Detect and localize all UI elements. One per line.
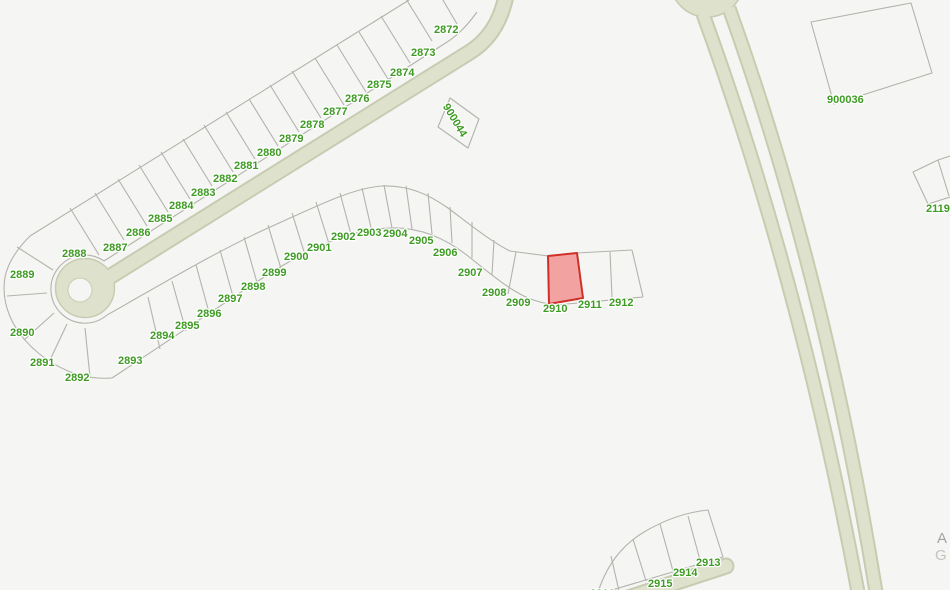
parcel-label-2881: 2881	[234, 160, 258, 172]
parcel-label-2893: 2893	[118, 355, 142, 367]
parcel-label-2878: 2878	[300, 119, 324, 131]
parcel-label-2911: 2911	[578, 299, 602, 311]
parcel-label-2907: 2907	[458, 267, 482, 279]
parcel-label-2876: 2876	[345, 93, 369, 105]
parcel-label-2905: 2905	[409, 235, 433, 247]
parcel-label-2899: 2899	[262, 267, 286, 279]
parcel-label-2914: 2914	[673, 567, 698, 579]
parcel-label-2910: 2910	[543, 303, 567, 315]
parcel-label-2900: 2900	[284, 251, 308, 263]
highlighted-parcel-2910[interactable]	[548, 253, 583, 304]
parcel-label-2888: 2888	[62, 248, 86, 260]
parcel-label-2898: 2898	[241, 281, 265, 293]
street-name-label: A	[937, 530, 947, 547]
map-viewport[interactable]: 2872287328742875287628772878287928802881…	[0, 0, 950, 590]
parcel-label-2901: 2901	[307, 242, 331, 254]
parcel-label-2912: 2912	[609, 297, 633, 309]
cul-de-sac-island	[68, 278, 92, 302]
parcel-label-2891: 2891	[30, 357, 54, 369]
parcel-label-2880: 2880	[257, 147, 281, 159]
street-name-label: G	[935, 547, 947, 564]
parcel-label-2877: 2877	[323, 106, 347, 118]
parcel-label-2879: 2879	[279, 133, 303, 145]
parcel-label-2894: 2894	[150, 330, 175, 342]
parcel-label-2874: 2874	[390, 67, 415, 79]
parcel-label-2895: 2895	[175, 320, 199, 332]
parcel-label-900036: 900036	[827, 94, 864, 106]
parcel-label-2915: 2915	[648, 578, 672, 590]
parcel-label-2882: 2882	[213, 173, 237, 185]
map-canvas[interactable]: 2872287328742875287628772878287928802881…	[0, 0, 950, 590]
parcel-label-2887: 2887	[103, 242, 127, 254]
parcel-label-2892: 2892	[65, 372, 89, 384]
parcel-label-2884: 2884	[169, 200, 194, 212]
parcel-label-2889: 2889	[10, 269, 34, 281]
parcel-label-2886: 2886	[126, 227, 150, 239]
parcel-label-2909: 2909	[506, 297, 530, 309]
parcel-label-2883: 2883	[191, 187, 215, 199]
parcel-label-2908: 2908	[482, 287, 506, 299]
parcel-label-2906: 2906	[433, 247, 457, 259]
highlight-layer	[548, 253, 583, 304]
parcel-label-2904: 2904	[383, 228, 408, 240]
parcel-label-2903: 2903	[357, 227, 381, 239]
parcel-label-2896: 2896	[197, 308, 221, 320]
parcel-label-2902: 2902	[331, 231, 355, 243]
parcel-label-2119: 2119	[926, 203, 950, 215]
parcel-label-2875: 2875	[367, 79, 391, 91]
parcel-label-2897: 2897	[218, 293, 242, 305]
parcel-label-2890: 2890	[10, 327, 34, 339]
parcel-label-2885: 2885	[148, 213, 172, 225]
parcel-label-2913: 2913	[696, 557, 720, 569]
parcel-label-2872: 2872	[434, 24, 458, 36]
parcel-label-2873: 2873	[411, 47, 435, 59]
